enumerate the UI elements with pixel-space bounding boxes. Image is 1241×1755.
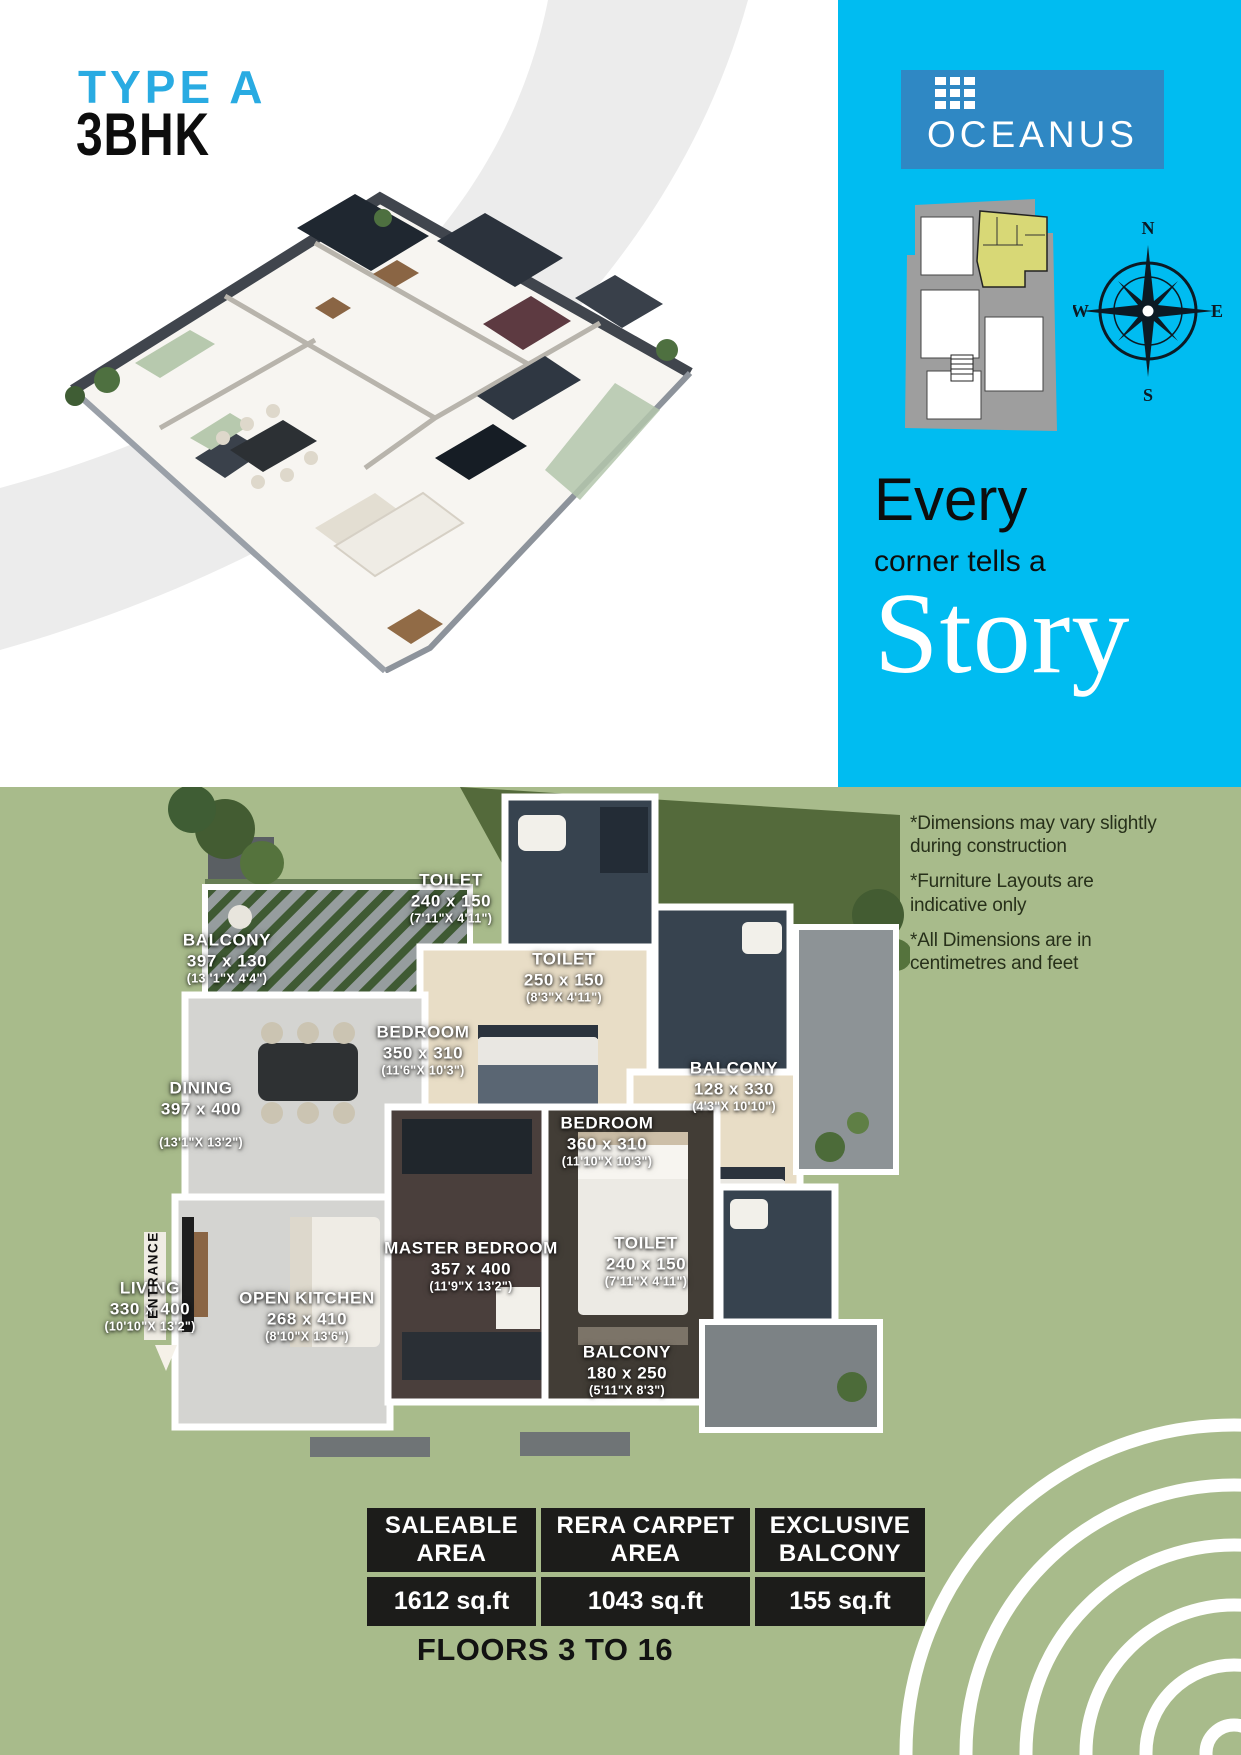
table-col-saleable: SALEABLE AREA 1612 sq.ft xyxy=(367,1508,536,1626)
tagline: Every corner tells a Story xyxy=(874,468,1130,688)
room-label-bedroom-1: BEDROOM 350 x 310 (11'6"X 10'3") xyxy=(377,1023,470,1080)
room-label-master-bedroom: MASTER BEDROOM 357 x 400 (11'9"X 13'2") xyxy=(384,1239,558,1296)
key-plan xyxy=(885,195,1065,435)
floorplan-section: *Dimensions may vary slightly during con… xyxy=(0,787,1241,1755)
isometric-floorplan-render xyxy=(15,128,745,673)
room-label-open-kitchen: OPEN KITCHEN 268 x 410 (8'10"X 13'6") xyxy=(239,1289,375,1346)
table-header-saleable: SALEABLE AREA xyxy=(367,1508,536,1572)
room-label-balcony-right: BALCONY 128 x 330 (4'3"X 10'10") xyxy=(690,1059,778,1116)
room-label-toilet-2: TOILET 250 x 150 (8'3"X 4'11") xyxy=(524,950,604,1007)
table-value-saleable: 1612 sq.ft xyxy=(367,1577,536,1626)
compass-south-label: S xyxy=(1143,385,1153,403)
disclaimer-1: *Dimensions may vary slightly during con… xyxy=(910,812,1170,858)
tagline-line3: Story xyxy=(874,581,1130,688)
tagline-line1: Every xyxy=(874,468,1130,531)
table-header-rera: RERA CARPET AREA xyxy=(541,1508,750,1572)
compass-east-label: E xyxy=(1211,301,1223,321)
floorplan-render xyxy=(130,787,910,1487)
room-label-bedroom-2: BEDROOM 360 x 310 (11'10"X 10'3") xyxy=(561,1114,654,1171)
grid-logo-icon xyxy=(935,77,975,109)
disclaimer-3: *All Dimensions are in centimetres and f… xyxy=(910,929,1170,975)
room-label-toilet-3: TOILET 240 x 150 (7'11"X 4'11") xyxy=(605,1234,687,1291)
room-label-balcony-top: BALCONY 397 x 130 (13 '1"X 4'4") xyxy=(183,931,271,988)
area-summary-table: SALEABLE AREA 1612 sq.ft RERA CARPET ARE… xyxy=(367,1508,925,1626)
floors-range-label: FLOORS 3 TO 16 xyxy=(330,1632,760,1668)
room-label-balcony-bottom: BALCONY 180 x 250 (5'11"X 8'3") xyxy=(583,1343,671,1400)
brand-name: OCEANUS xyxy=(901,114,1164,156)
concentric-circles-decor xyxy=(896,1385,1241,1755)
room-label-dining: DINING 397 x 400 (13'1"X 13'2") xyxy=(159,1079,243,1152)
table-col-rera: RERA CARPET AREA 1043 sq.ft xyxy=(541,1508,750,1626)
brand-panel: OCEANUS xyxy=(838,0,1241,787)
compass-north-label: N xyxy=(1142,218,1155,238)
table-value-rera: 1043 sq.ft xyxy=(541,1577,750,1626)
entrance-label: ENTRANCE xyxy=(146,1231,161,1319)
brochure-page: TYPE A 3BHK OCEANUS xyxy=(0,0,1241,1755)
brand-logo: OCEANUS xyxy=(901,70,1164,169)
disclaimer-2: *Furniture Layouts are indicative only xyxy=(910,870,1170,916)
room-label-toilet-1: TOILET 240 x 150 (7'11"X 4'11") xyxy=(410,871,492,928)
compass-west-label: W xyxy=(1073,301,1089,321)
disclaimer-notes: *Dimensions may vary slightly during con… xyxy=(910,812,1170,987)
compass-rose: N E S W xyxy=(1073,218,1223,403)
